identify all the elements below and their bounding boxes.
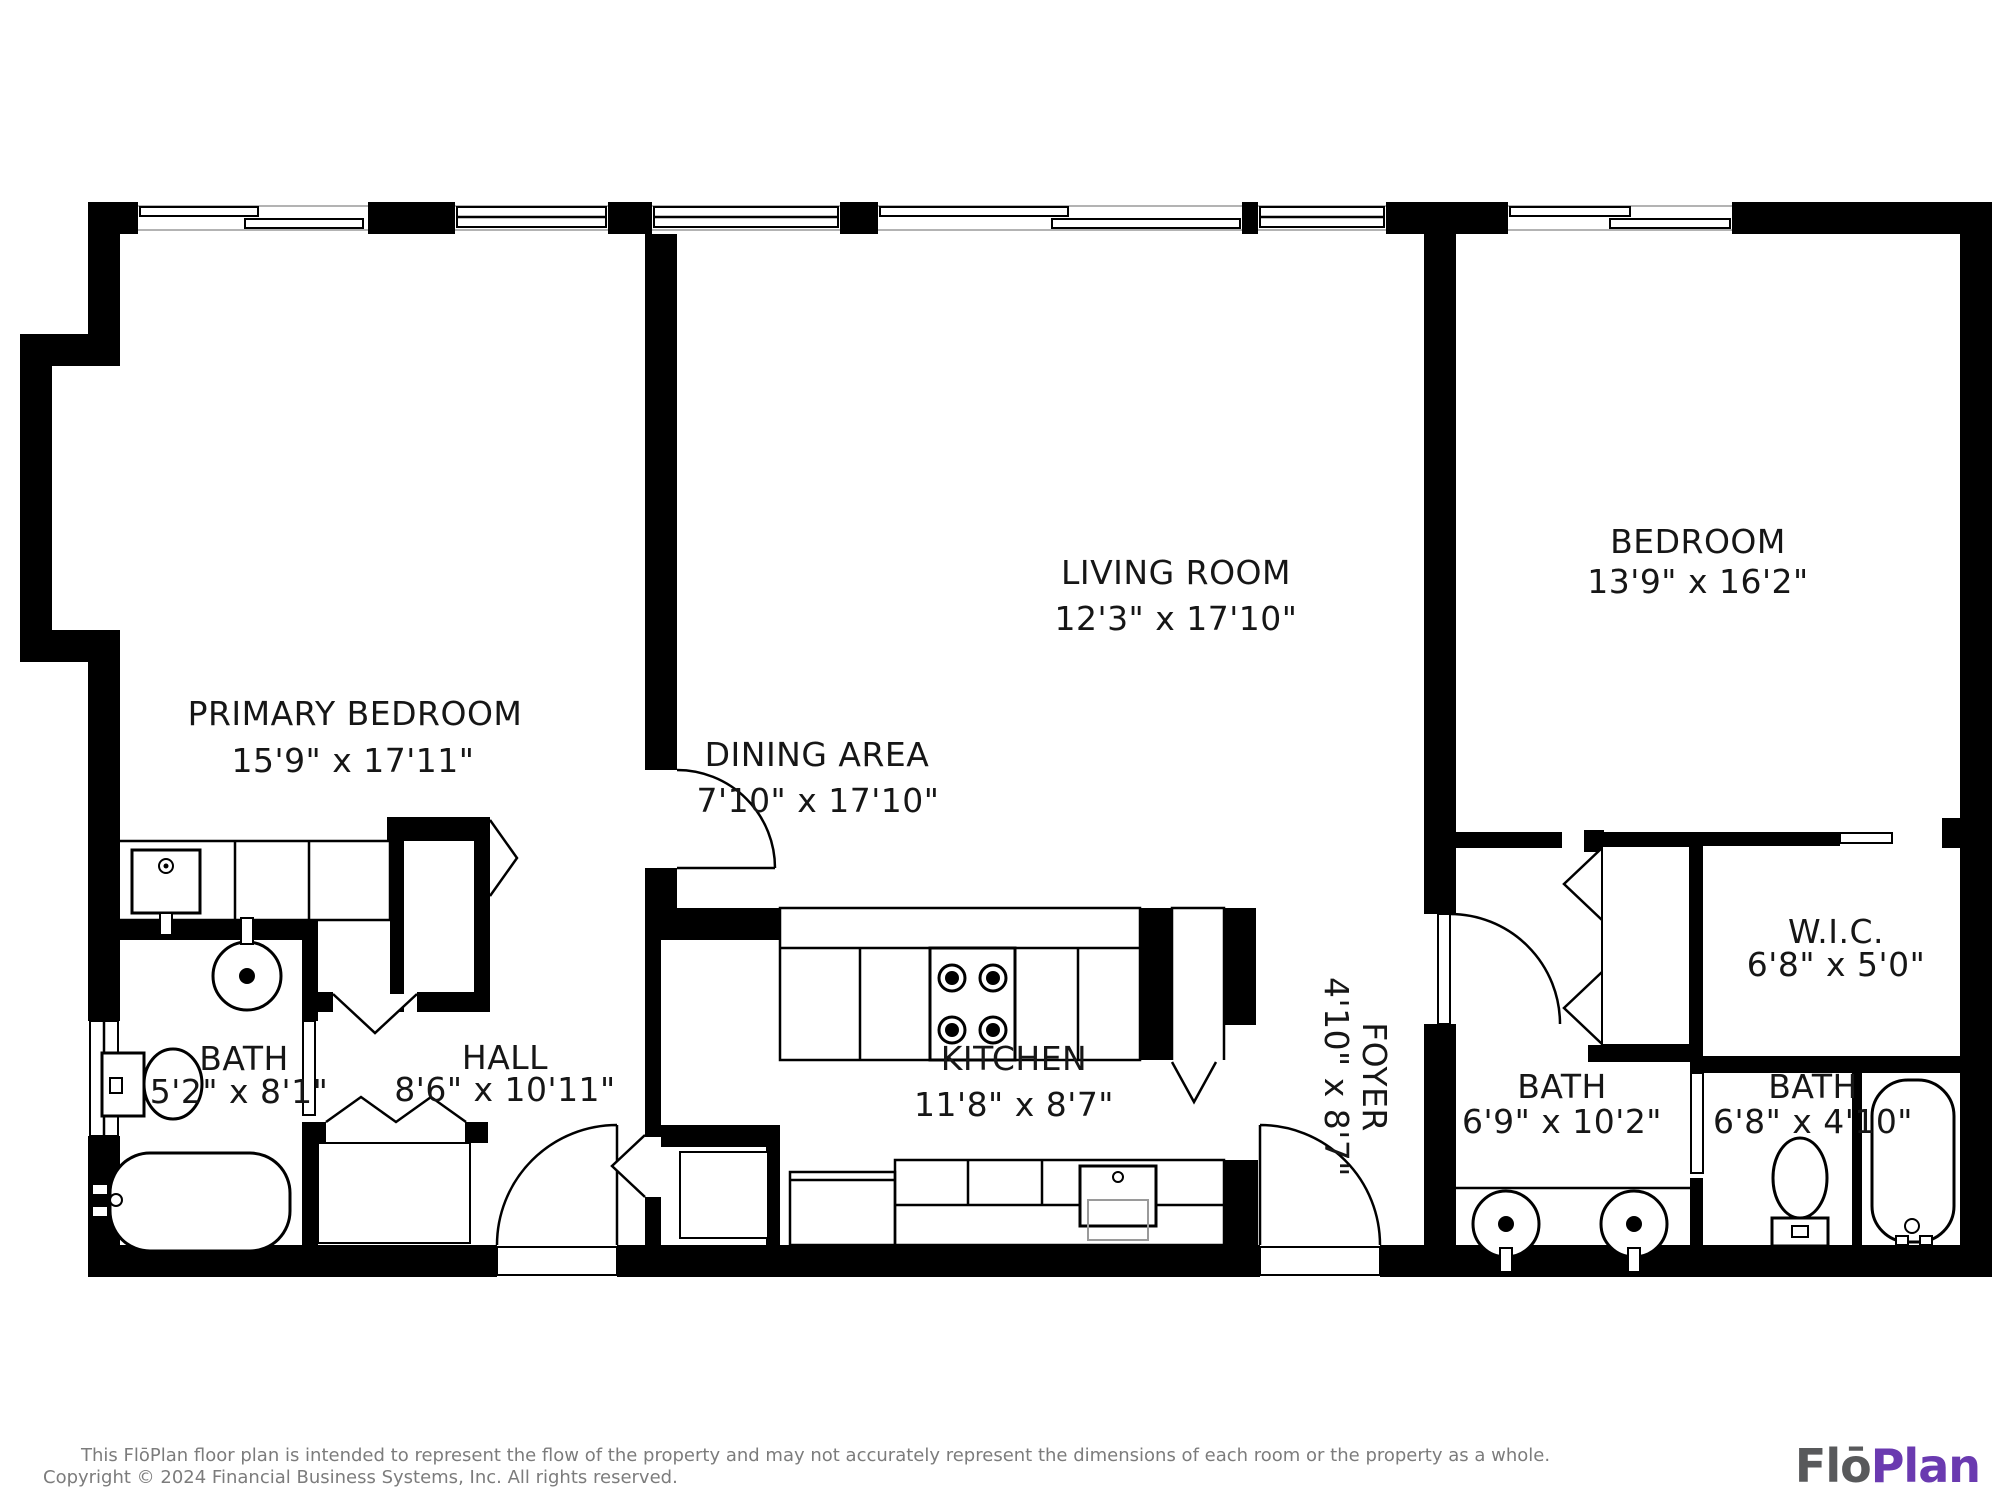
wall-top-seg5 — [1242, 202, 1258, 234]
wall-bath-right-upper — [302, 940, 318, 1021]
wall-kitchen-top-left — [661, 908, 780, 940]
toilet-flush — [110, 1078, 122, 1093]
wall-left-notch-top — [20, 334, 120, 366]
wall-left-seg1 — [88, 234, 120, 350]
dims-primary-bedroom: 15'9" x 17'11" — [232, 741, 475, 780]
label-primary-bedroom: PRIMARY BEDROOM — [188, 694, 523, 733]
wall-foyer-right — [1424, 1024, 1456, 1245]
tub-faucet-handle — [92, 1206, 108, 1217]
wall-bedroom-bath — [88, 920, 318, 940]
dims-wic: 6'8" x 5'0" — [1747, 945, 1926, 984]
dims-kitchen: 11'8" x 8'7" — [914, 1085, 1114, 1124]
footer-copyright: Copyright © 2024 Financial Business Syst… — [43, 1467, 678, 1488]
label-foyer: FOYER — [1355, 1022, 1394, 1132]
wall-top-seg7 — [1732, 202, 1992, 234]
wall-top-seg4 — [840, 202, 878, 234]
wall-left-outer — [20, 366, 52, 662]
floplan-logo: FlōPlan — [1795, 1439, 1980, 1493]
wall-top-seg2 — [368, 202, 455, 234]
wall-living-bedroom — [1424, 234, 1456, 914]
wall-left-notch-bottom — [20, 630, 120, 662]
tub2-handle — [1920, 1236, 1932, 1245]
burner-center — [986, 1023, 1000, 1037]
tub2-handle — [1896, 1236, 1908, 1245]
label-bath-hall: BATH — [1517, 1067, 1607, 1106]
wall-hall-closet-top — [661, 1125, 780, 1147]
wall-top-seg1 — [88, 202, 138, 234]
dims-bedroom: 13'9" x 16'2" — [1587, 562, 1808, 601]
dims-foyer: 4'10" x 8'7" — [1317, 977, 1356, 1177]
sink-faucet — [1628, 1248, 1640, 1272]
floor-plan-canvas: PRIMARY BEDROOM 15'9" x 17'11" DINING AR… — [0, 0, 2000, 1500]
counter-end-post — [1224, 1160, 1258, 1245]
label-living-room: LIVING ROOM — [1061, 553, 1291, 592]
bath-sink-faucet — [241, 918, 253, 944]
hall-closet-box — [318, 1143, 470, 1243]
label-bedroom: BEDROOM — [1610, 522, 1786, 561]
wall-nook-left — [390, 841, 404, 1012]
dims-living-room: 12'3" x 17'10" — [1055, 599, 1298, 638]
wall-bath2-left-lower — [1690, 1178, 1703, 1245]
wall-kitchen-right — [1140, 908, 1172, 1060]
wall-top-seg3 — [608, 202, 652, 234]
label-kitchen: KITCHEN — [941, 1039, 1088, 1078]
dims-bath-hall: 6'9" x 10'2" — [1462, 1102, 1662, 1141]
wall-bottom-seg2 — [617, 1245, 1260, 1277]
bedroom-closet-box — [1602, 846, 1690, 1045]
sliding-window-pane — [140, 207, 258, 216]
wic-sliding-door — [1840, 833, 1892, 843]
dims-hall: 8'6" x 10'11" — [394, 1070, 615, 1109]
dims-bath-second: 6'8" x 4'10" — [1713, 1102, 1913, 1141]
sliding-window-pane — [880, 207, 1068, 216]
wall-bedroom-hall-header — [387, 817, 490, 841]
wall-hall-closet-left — [302, 1122, 326, 1143]
toilet2-bowl — [1773, 1138, 1827, 1218]
wall-wic-top — [1602, 832, 1840, 846]
dims-bath-primary: 5'2" x 8'1" — [150, 1072, 329, 1111]
label-bath-second: BATH — [1768, 1067, 1858, 1106]
wall-primary-dining — [645, 234, 677, 770]
wall-wic-corner — [1942, 818, 1992, 848]
wall-kitchen-left-lower — [645, 1197, 661, 1245]
tub-faucet-handle — [92, 1184, 108, 1195]
burner-center — [945, 1023, 959, 1037]
sliding-window-pane — [1610, 219, 1730, 228]
kitchen-faucet — [1113, 1172, 1123, 1182]
bedroom-door-leaf — [1438, 914, 1450, 1024]
dims-dining-area: 7'10" x 17'10" — [697, 781, 940, 820]
sliding-window-pane — [1052, 219, 1240, 228]
logo-plan: Plan — [1871, 1439, 1980, 1493]
wall-nook-right — [474, 841, 490, 1012]
wall-bottom-seg3 — [1380, 1245, 1992, 1277]
wall-bath-nook-seg2 — [417, 992, 474, 1012]
wall-hall-closet-right — [465, 1122, 488, 1143]
foyer-entry-threshold — [1260, 1247, 1380, 1275]
toilet2-flush — [1792, 1226, 1808, 1237]
wall-bath-hall-top — [1588, 1045, 1690, 1062]
wall-right — [1960, 234, 1992, 1277]
wall-bedroom-south-seg1 — [1456, 832, 1562, 848]
label-dining-area: DINING AREA — [705, 735, 930, 774]
logo-flo: Flō — [1795, 1439, 1871, 1493]
wall-kitchen-left — [645, 925, 661, 1137]
wall-top-seg6 — [1386, 202, 1508, 234]
vanity-faucet-dot — [164, 864, 169, 869]
wall-closet-wic-divider — [1690, 846, 1703, 1056]
wall-bath-right-lower — [302, 1138, 318, 1245]
sliding-window-pane — [1510, 207, 1630, 216]
footer-disclaimer: This FlōPlan floor plan is intended to r… — [80, 1445, 1550, 1466]
closet-appliance-box — [680, 1152, 768, 1238]
sink-drain — [1498, 1216, 1514, 1232]
sink-faucet — [1500, 1248, 1512, 1272]
tub2-spout — [1905, 1219, 1919, 1233]
burner-center — [945, 971, 959, 985]
bath2-door-leaf — [1691, 1073, 1703, 1173]
bathtub-primary — [110, 1153, 290, 1251]
burner-center — [986, 971, 1000, 985]
sink-drain — [1626, 1216, 1642, 1232]
sliding-window-pane — [245, 219, 363, 228]
hall-entry-threshold — [497, 1247, 617, 1275]
wall-foyer-left — [1224, 908, 1256, 1025]
tub-spout — [110, 1194, 122, 1206]
bath-sink-drain — [239, 968, 255, 984]
vanity-sink-drain — [160, 913, 172, 935]
